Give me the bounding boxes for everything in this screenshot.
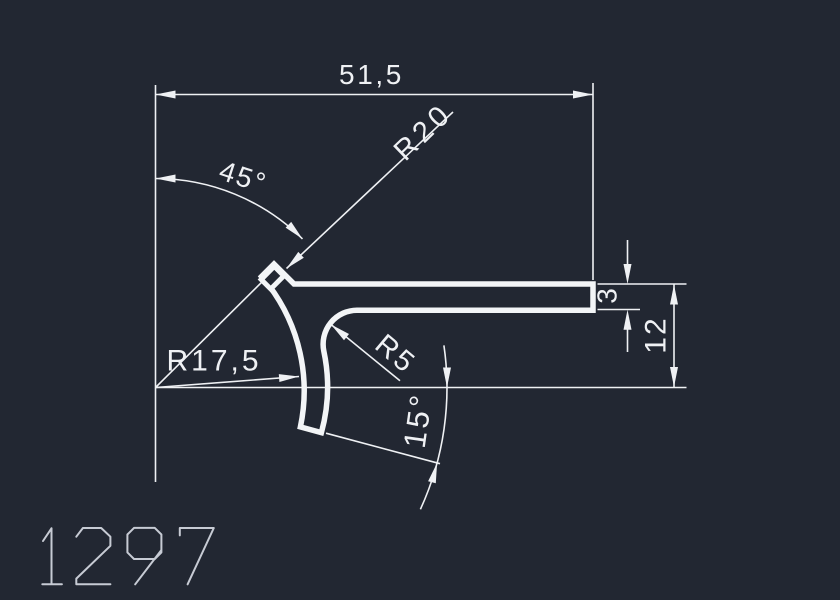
svg-text:12: 12 [640, 316, 673, 353]
svg-text:3: 3 [592, 288, 623, 304]
svg-text:51,5: 51,5 [339, 59, 404, 90]
svg-text:R17,5: R17,5 [166, 345, 261, 378]
